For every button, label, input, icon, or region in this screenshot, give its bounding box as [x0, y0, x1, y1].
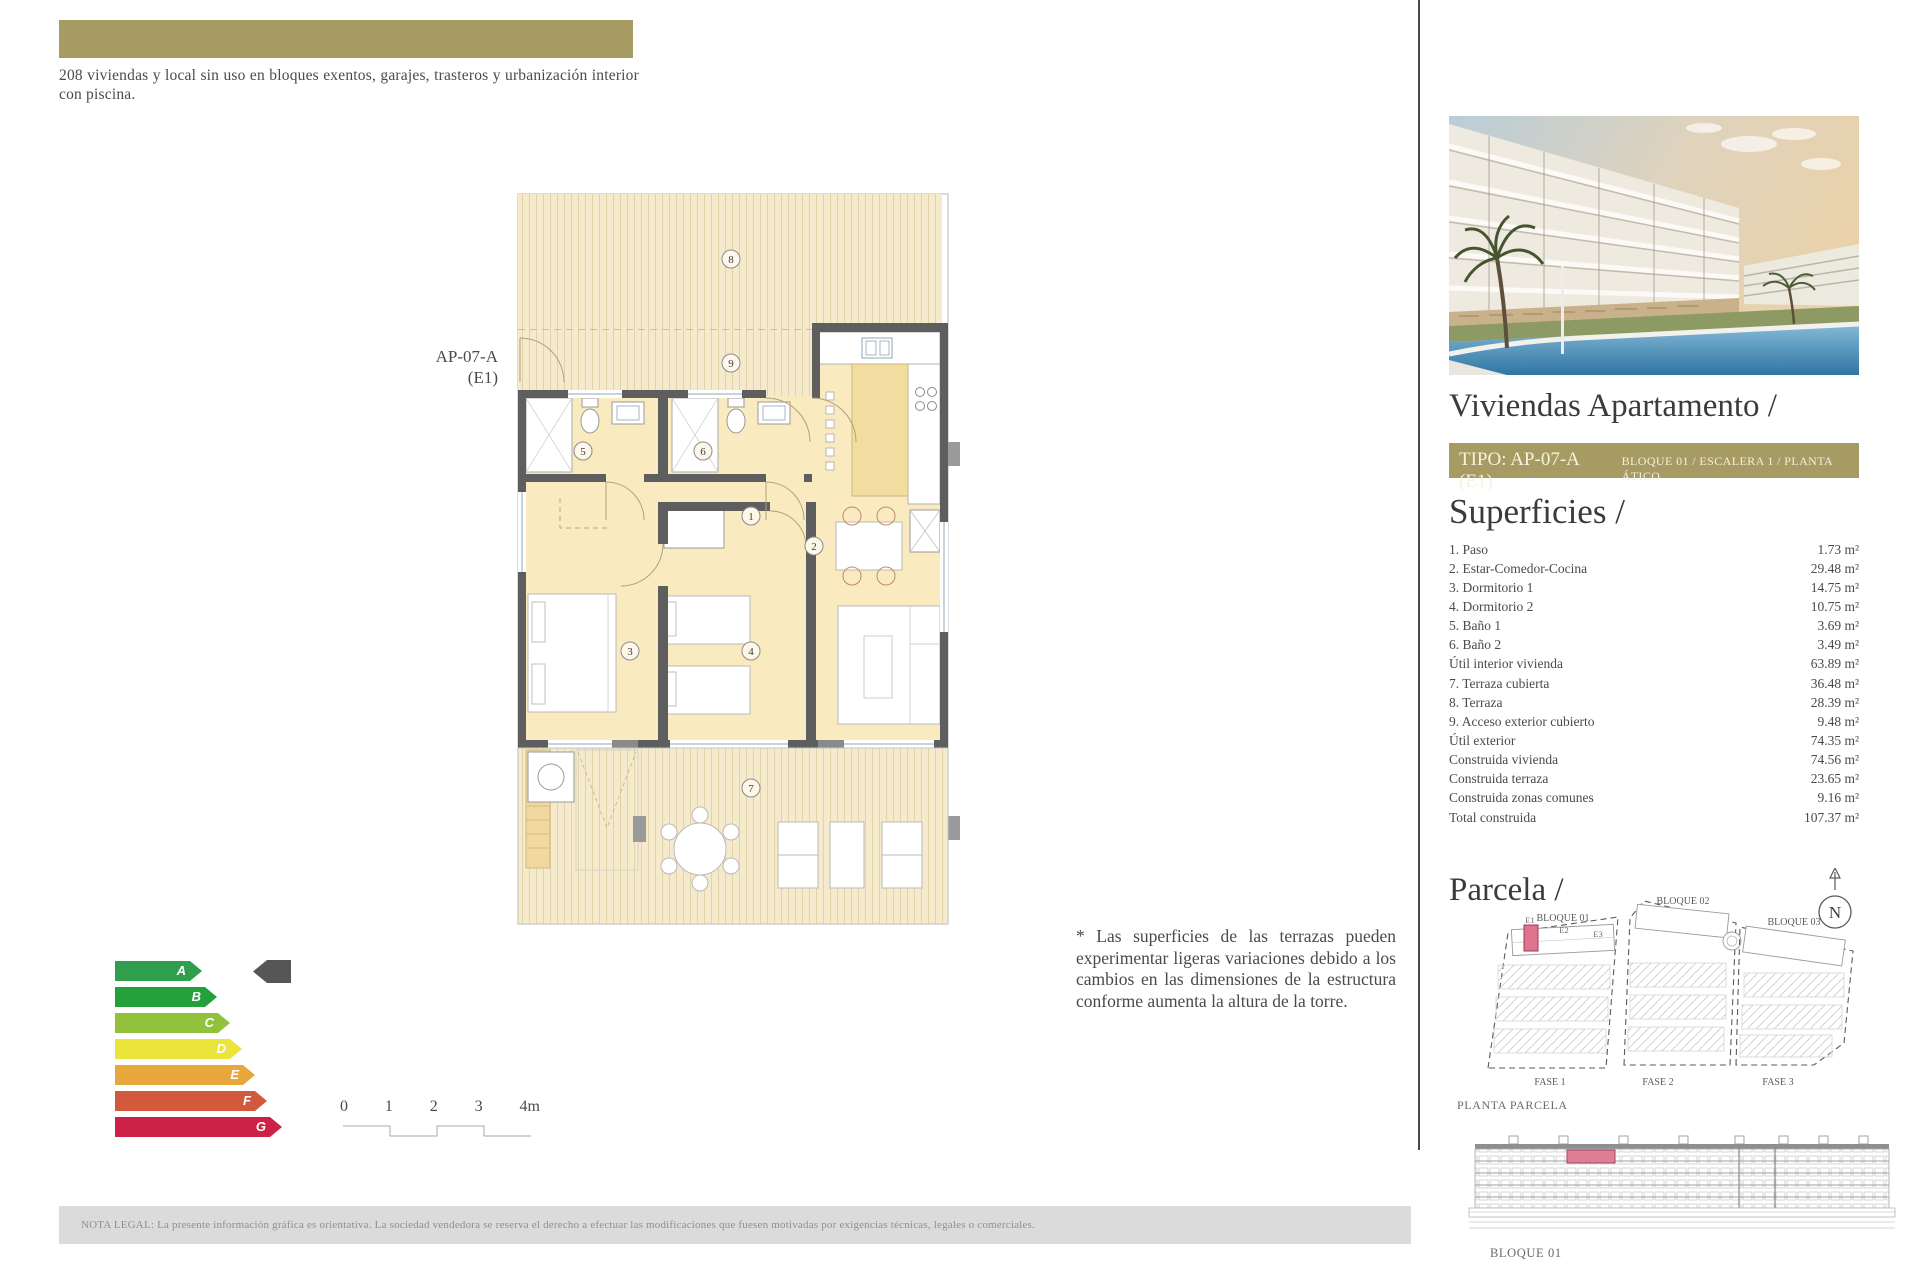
table-row: 9. Acceso exterior cubierto9.48 m² — [1449, 712, 1859, 731]
unit-highlight-elevation — [1567, 1150, 1615, 1163]
top-accent-bar — [59, 20, 633, 58]
legal-bar: NOTA LEGAL: La presente información gráf… — [59, 1206, 1411, 1244]
table-row: Construida zonas comunes9.16 m² — [1449, 789, 1859, 808]
fase-2-label: FASE 2 — [1642, 1077, 1673, 1088]
room-number-4: 4 — [748, 646, 754, 658]
table-row: 2. Estar-Comedor-Cocina29.48 m² — [1449, 559, 1859, 578]
building-elevation — [1467, 1130, 1897, 1240]
elevation-caption: BLOQUE 01 — [1490, 1246, 1562, 1261]
energy-letter-e: E — [230, 1067, 239, 1082]
room-badge-9: 9 — [722, 354, 740, 372]
table-row: Construida vivienda74.56 m² — [1449, 751, 1859, 770]
table-row: 3. Dormitorio 114.75 m² — [1449, 578, 1859, 597]
room-number-2: 2 — [811, 541, 817, 553]
table-row: 1. Paso1.73 m² — [1449, 540, 1859, 559]
room-number-5: 5 — [580, 446, 586, 458]
development-description: 208 viviendas y local sin uso en bloques… — [59, 66, 639, 104]
energy-grade-G: G — [115, 1117, 282, 1137]
energy-letter-b: B — [192, 989, 201, 1004]
planta-parcela-caption: PLANTA PARCELA — [1457, 1098, 1568, 1113]
brochure-page: 208 viviendas y local sin uso en bloques… — [0, 0, 1920, 1280]
room-number-7: 7 — [748, 783, 754, 795]
energy-grade-F: F — [115, 1091, 267, 1111]
tipo-label: TIPO: AP-07-A (E1) — [1459, 449, 1608, 493]
tipo-details: BLOQUE 01 / ESCALERA 1 / PLANTA ÁTICO — [1622, 454, 1859, 484]
bloque-02-label: BLOQUE 02 — [1656, 896, 1709, 907]
room-number-1: 1 — [748, 511, 754, 523]
stair-e2-label: E2 — [1559, 925, 1568, 935]
hero-photo — [1449, 116, 1859, 375]
scale-label-2: 2 — [430, 1098, 438, 1116]
stair-e3-label: E3 — [1593, 929, 1602, 939]
room-badge-1: 1 — [742, 507, 760, 525]
table-row: Total construida107.37 m² — [1449, 808, 1859, 827]
room-badge-5: 5 — [574, 442, 592, 460]
unit-label-line1: AP-07-A — [420, 346, 498, 367]
room-badge-3: 3 — [621, 642, 639, 660]
north-compass-icon: N — [1812, 868, 1858, 934]
scale-label-1: 1 — [385, 1098, 393, 1116]
energy-letter-g: G — [256, 1119, 266, 1134]
table-row: Construida terraza23.65 m² — [1449, 770, 1859, 789]
table-row: Útil exterior74.35 m² — [1449, 731, 1859, 750]
scale-bar-labels: 0 1 2 3 4m — [340, 1098, 540, 1116]
room-number-3: 3 — [627, 646, 633, 658]
energy-grade-E: E — [115, 1065, 255, 1085]
superficies-heading: Superficies / — [1449, 492, 1625, 532]
superficies-table: 1. Paso1.73 m² 2. Estar-Comedor-Cocina29… — [1449, 540, 1859, 827]
room-number-9: 9 — [728, 358, 734, 370]
unit-label-line2: (E1) — [420, 367, 498, 388]
unit-label: AP-07-A (E1) — [420, 346, 498, 388]
room-badge-7: 7 — [742, 779, 760, 797]
energy-letter-f: F — [243, 1093, 251, 1108]
room-badge-8: 8 — [722, 250, 740, 268]
table-row: Útil interior vivienda63.89 m² — [1449, 655, 1859, 674]
fase-3-label: FASE 3 — [1762, 1077, 1793, 1088]
room-badge-4: 4 — [742, 642, 760, 660]
scale-bar-steps — [343, 1124, 539, 1138]
stair-e1-label: E1 — [1525, 915, 1534, 925]
tipo-bar: TIPO: AP-07-A (E1) BLOQUE 01 / ESCALERA … — [1449, 443, 1859, 478]
room-number-8: 8 — [728, 254, 734, 266]
table-row: 4. Dormitorio 210.75 m² — [1449, 597, 1859, 616]
energy-grade-B: B — [115, 987, 217, 1007]
energy-rating-chart: A B C D E F G — [115, 961, 335, 1146]
bloque-01-label: BLOQUE 01 — [1536, 913, 1589, 924]
floor-plan: 8 9 5 6 1 2 3 4 7 — [512, 192, 962, 934]
room-badge-6: 6 — [694, 442, 712, 460]
table-row: 8. Terraza28.39 m² — [1449, 693, 1859, 712]
scale-label-4m: 4m — [520, 1098, 540, 1116]
energy-letter-c: C — [205, 1015, 214, 1030]
energy-grade-A: A — [115, 961, 202, 981]
legal-text: NOTA LEGAL: La presente información gráf… — [81, 1219, 1035, 1231]
compass-letter: N — [1829, 903, 1841, 922]
energy-letter-a: A — [177, 963, 186, 978]
energy-selected-arrow-icon — [253, 960, 291, 983]
scale-label-0: 0 — [340, 1098, 348, 1116]
room-badge-2: 2 — [805, 537, 823, 555]
vertical-divider — [1418, 0, 1420, 1150]
table-row: 6. Baño 23.49 m² — [1449, 636, 1859, 655]
table-row: 7. Terraza cubierta36.48 m² — [1449, 674, 1859, 693]
fase-1-label: FASE 1 — [1534, 1077, 1565, 1088]
table-row: 5. Baño 13.69 m² — [1449, 617, 1859, 636]
room-number-6: 6 — [700, 446, 706, 458]
page-title: Viviendas Apartamento / — [1449, 388, 1777, 425]
energy-grade-D: D — [115, 1039, 242, 1059]
terrace-note: * Las superficies de las terrazas pueden… — [1076, 926, 1396, 1012]
energy-grade-C: C — [115, 1013, 230, 1033]
energy-letter-d: D — [217, 1041, 226, 1056]
unit-highlight — [1524, 925, 1538, 951]
scale-label-3: 3 — [475, 1098, 483, 1116]
